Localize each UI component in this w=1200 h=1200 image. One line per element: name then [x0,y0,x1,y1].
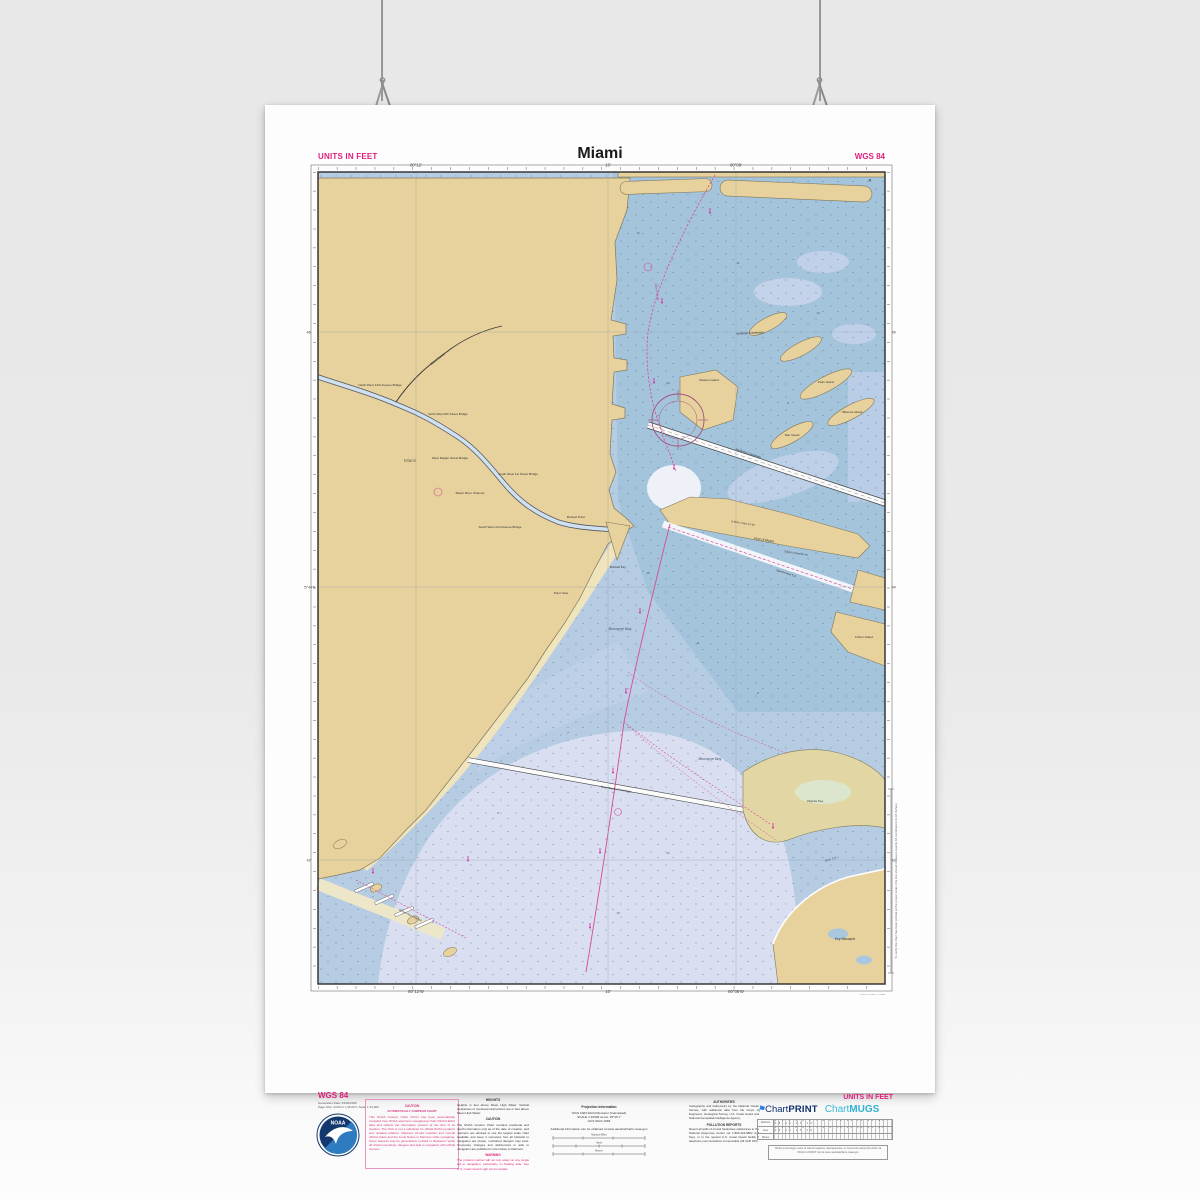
header-datum-label: WGS 84 [765,152,885,161]
pollution-body: Report all spills of oil and hazardous s… [689,1128,759,1144]
chartprint-logo-chart: Chart [765,1104,788,1115]
noaa-logo: NOAA [315,1112,361,1158]
svg-text:11: 11 [696,641,699,645]
caution-box-body: This NOAA Custom Chart (NCC) has been au… [369,1115,455,1151]
caution-box: CAUTION AUTOMATICALLY COMPILED CHART Thi… [365,1099,459,1169]
poster: UNITS IN FEET Miami WGS 84 [265,105,935,1093]
label-biscayne-bay-1: Biscayne Bay [608,627,632,631]
heights-body: Heights in feet above Mean High Water. V… [457,1103,529,1115]
label-bridge-3: West Flagler Street Bridge [432,456,469,460]
svg-text:12: 12 [636,231,640,235]
svg-text:10: 10 [616,911,620,915]
conversion-row-label: Feet [758,1127,774,1133]
label-fisher-island: Fisher Island [855,635,873,639]
svg-text:42': 42' [307,859,312,863]
svg-text:16: 16 [646,571,650,575]
svg-text:12: 12 [666,851,670,855]
label-brickell-point: Brickell Point [567,515,585,519]
svg-text:46': 46' [892,331,897,335]
label-palm-island: Palm Island [818,380,834,384]
svg-text:46': 46' [307,331,312,335]
svg-text:80°12'W: 80°12'W [408,989,424,994]
svg-text:80°08'W: 80°08'W [728,989,744,994]
label-biscayne-bay-2: Biscayne Bay [698,757,722,761]
label-key-biscayne: Key Biscayne [835,937,856,941]
kb-lake-2 [856,956,872,965]
svg-text:NOAA: NOAA [331,1121,346,1127]
chart-credit: NOAA ENC 11468 [861,993,886,995]
caution-body: The NOAA Custom Chart contains positiona… [457,1123,529,1151]
svg-text:Meters: Meters [595,1149,603,1152]
authorities-body: Cartography and bathymetry by the Nation… [689,1105,759,1121]
wreck-symbol: ✕ [868,178,872,183]
caution-box-heading: CAUTION [369,1104,455,1108]
svg-text:25°44'N: 25°44'N [304,586,316,590]
svg-text:80°08': 80°08' [730,163,742,168]
label-point-view: Point View [554,591,569,595]
unit-conversion-table: Fathoms1 2 3 4 5 6 7 8 9 10 11 12 13 14 … [757,1119,893,1140]
svg-text:Yards: Yards [596,1141,603,1144]
caution-heading: CAUTION [457,1117,529,1121]
svg-text:80°12': 80°12' [410,163,422,168]
label-bridge-4: South West 1st Street Bridge [498,472,538,476]
label-hibiscus-island: Hibiscus Island [842,410,863,414]
authorities-column: AUTHORITIES Cartography and bathymetry b… [689,1098,759,1144]
svg-text:10: 10 [666,381,670,385]
svg-text:11: 11 [736,261,739,265]
scale-verification-ruler: To verify the chart has been printed at … [887,785,903,977]
label-miami: Miami [404,458,416,463]
footer-units-label: UNITS IN FEET [765,1093,893,1102]
svg-text:To verify the chart has been p: To verify the chart has been printed at … [894,803,898,958]
scale-bars: Nautical Miles Yards Meters [547,1132,651,1158]
notes-column: HEIGHTS Heights in feet above Mean High … [457,1096,529,1171]
caution-box-subheading: AUTOMATICALLY COMPILED CHART [369,1110,455,1114]
conversion-ticks: 1 2 3 4 5 6 7 8 9 10 11 12 13 14 15 16 1… [774,1127,892,1133]
brand-logos: ⚑ChartPRINTChartMUGS [757,1103,893,1117]
svg-text:13: 13 [816,311,820,315]
svg-text:10': 10' [605,989,611,994]
chartprint-flag-icon: ⚑ [757,1104,765,1114]
svg-text:44': 44' [892,586,897,590]
chartmugs-logo-chart: Chart [825,1104,849,1115]
svg-text:10': 10' [605,163,611,168]
warning-heading: WARNING [457,1153,529,1157]
warning-body: The prudent mariner will not rely solely… [457,1158,529,1170]
nautical-chart: 80°12' 10' 80°08' 80°12'W 10' 80°08'W 46… [304,161,899,995]
conversion-row-label: Fathoms [758,1120,774,1126]
label-watson-island: Watson Island [699,378,719,382]
projection-line-3: GCS WGS 1984 [547,1119,651,1123]
legend: WGS 84 Generation Date: 03/04/2025 Page … [265,1090,935,1190]
chartmugs-logo-mugs: MUGS [849,1104,879,1115]
feedback-disclaimer-box: NOAA encourages users to submit inquirie… [768,1145,888,1160]
conversion-ticks [774,1134,892,1140]
heights-heading: HEIGHTS [457,1098,529,1102]
projection-column: Projection information WGS 1984 World Me… [547,1103,651,1159]
chartprint-logo-print: PRINT [788,1104,818,1115]
label-bridge-2: North West 5th Street Bridge [428,412,468,416]
label-virginia-key: Virginia Key [807,799,824,803]
label-brickell-key: Brickell Key [610,565,627,569]
svg-text:Nautical Miles: Nautical Miles [591,1133,607,1136]
conversion-row-label: Meters [758,1134,774,1140]
label-bridge-1: North West 12th Avenue Bridge [358,383,402,387]
label-bridge-5: South West 2nd Avenue Bridge [479,525,522,529]
label-river-channel: Miami River Channel [456,491,485,495]
projection-heading: Projection information [547,1105,651,1109]
label-star-island: Star Island [785,433,800,437]
conversion-ticks: 1 2 3 4 5 6 7 8 9 10 11 12 13 14 15 16 1… [774,1120,892,1126]
